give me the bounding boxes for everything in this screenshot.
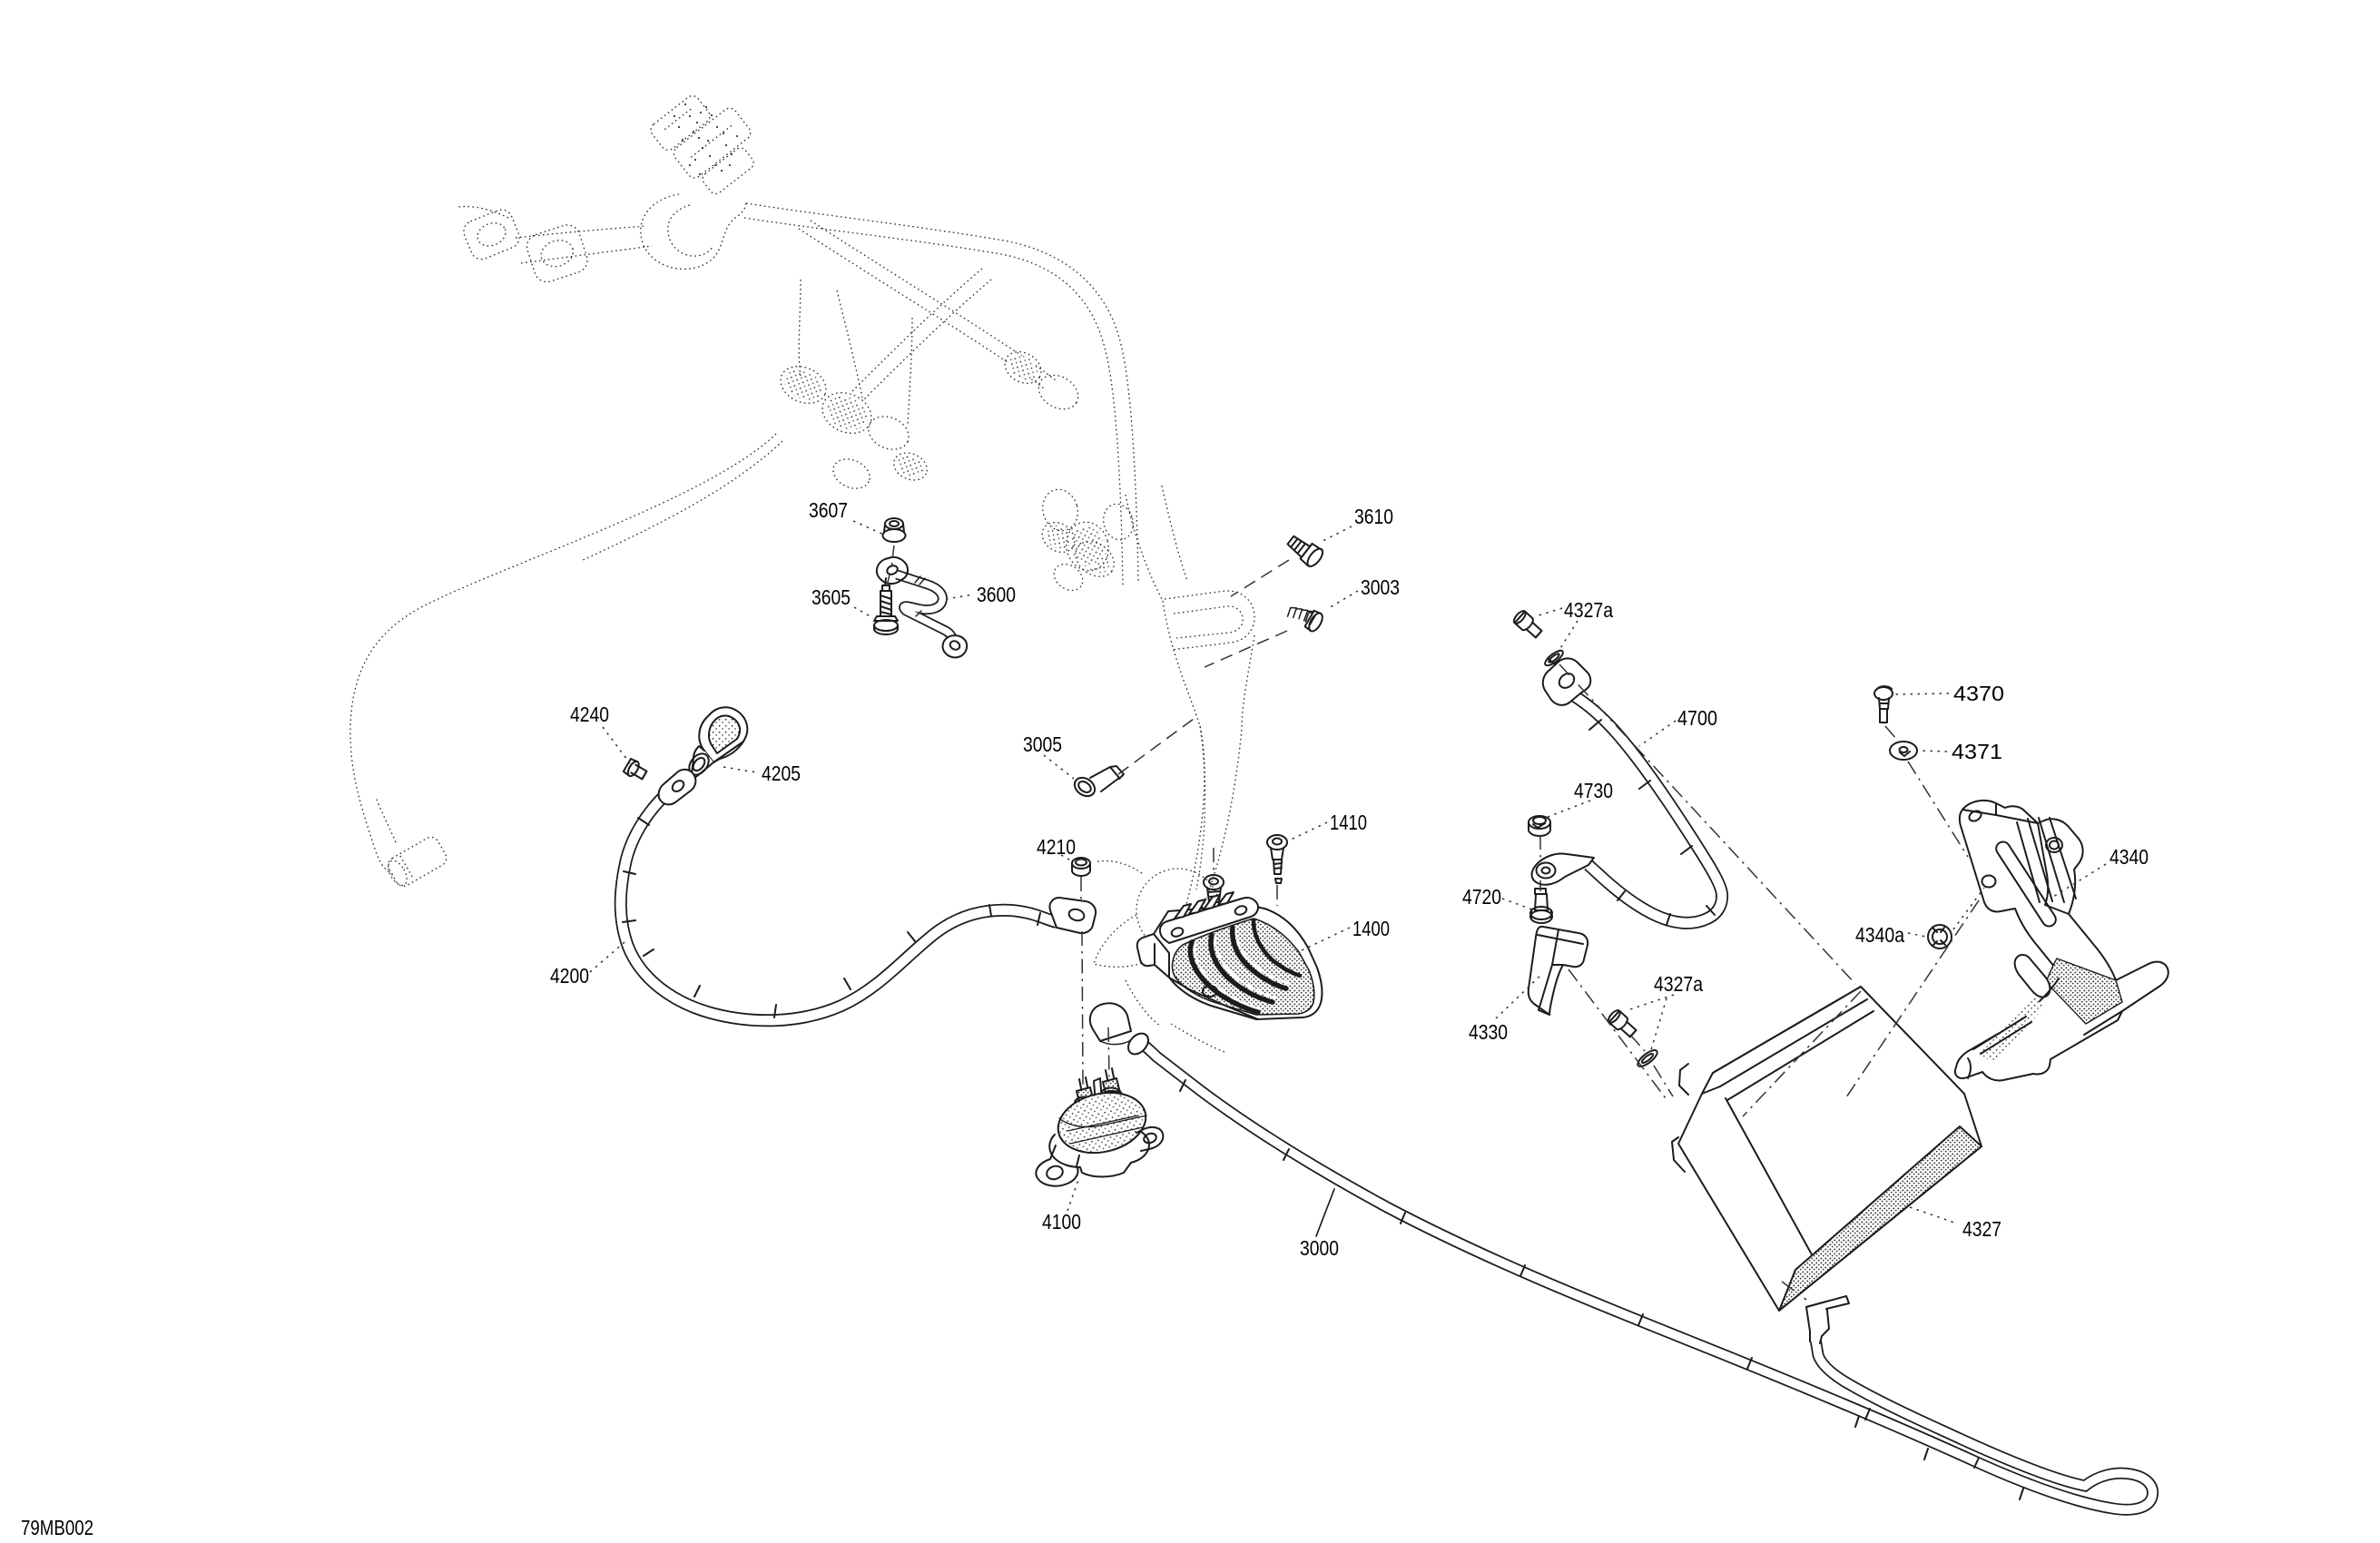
svg-text:4205: 4205 bbox=[762, 762, 801, 785]
svg-text:4210: 4210 bbox=[1037, 835, 1076, 859]
svg-text:4730: 4730 bbox=[1574, 779, 1613, 802]
svg-text:4340: 4340 bbox=[2110, 845, 2149, 869]
svg-text:1410: 1410 bbox=[1330, 811, 1367, 834]
svg-text:4327: 4327 bbox=[1962, 1217, 2001, 1241]
svg-text:3000: 3000 bbox=[1300, 1236, 1339, 1260]
svg-text:3607: 3607 bbox=[809, 498, 848, 522]
svg-text:4200: 4200 bbox=[550, 964, 589, 988]
svg-text:4327a: 4327a bbox=[1654, 972, 1704, 996]
svg-text:4340a: 4340a bbox=[1855, 923, 1905, 947]
svg-text:4327a: 4327a bbox=[1564, 598, 1614, 622]
svg-text:4700: 4700 bbox=[1677, 706, 1717, 730]
svg-text:4100: 4100 bbox=[1042, 1210, 1081, 1233]
svg-text:4371: 4371 bbox=[1952, 740, 2002, 763]
svg-text:1400: 1400 bbox=[1352, 917, 1390, 940]
svg-text:4240: 4240 bbox=[570, 703, 609, 726]
svg-text:4720: 4720 bbox=[1462, 885, 1501, 909]
svg-text:3003: 3003 bbox=[1361, 575, 1400, 599]
svg-text:4330: 4330 bbox=[1469, 1020, 1508, 1044]
svg-text:3605: 3605 bbox=[811, 585, 851, 609]
svg-text:3610: 3610 bbox=[1354, 505, 1393, 528]
svg-text:3005: 3005 bbox=[1023, 732, 1062, 756]
svg-text:4370: 4370 bbox=[1953, 682, 2004, 705]
svg-text:79MB002: 79MB002 bbox=[21, 1516, 93, 1539]
svg-text:3600: 3600 bbox=[977, 583, 1016, 606]
